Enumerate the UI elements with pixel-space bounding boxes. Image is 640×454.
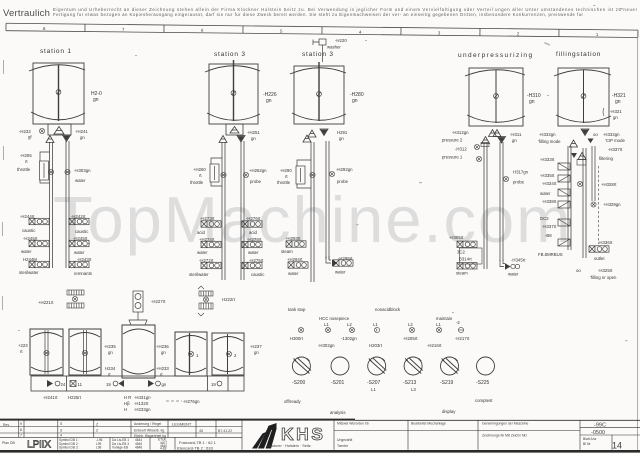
svg-text:+H233: +H233 xyxy=(156,366,169,371)
svg-text:throttle: throttle xyxy=(277,180,291,185)
svg-text:-H205rt: -H205rt xyxy=(403,336,418,341)
svg-text:B314rt: B314rt xyxy=(459,257,472,262)
svg-text:L3: L3 xyxy=(411,387,416,392)
svg-text:-H232: -H232 xyxy=(19,129,31,134)
svg-text:Mitswei Wurorden bb: Mitswei Wurorden bb xyxy=(337,421,369,425)
svg-text:water: water xyxy=(197,250,208,255)
svg-text:-H345rt: -H345rt xyxy=(511,258,526,263)
svg-text:-H332gn: -H332gn xyxy=(603,132,620,137)
svg-text:Blatt Anz: Blatt Anz xyxy=(583,437,597,441)
svg-text:S: S xyxy=(60,429,63,433)
svg-text:gn: gn xyxy=(512,138,517,143)
svg-text:gn: gn xyxy=(339,136,344,141)
svg-text:+H293rt: +H293rt xyxy=(285,236,301,241)
svg-text:gn: gn xyxy=(615,99,621,105)
svg-text:-H243rt: -H243rt xyxy=(77,257,92,262)
svg-text:off/ready: off/ready xyxy=(284,399,301,404)
svg-text:24: 24 xyxy=(61,382,66,387)
svg-text:-H312gn: -H312gn xyxy=(452,130,469,135)
svg-text:L1: L1 xyxy=(371,387,376,392)
svg-text:1: 1 xyxy=(196,353,199,358)
svg-text:+H251: +H251 xyxy=(247,130,260,135)
svg-text:Fertigung fur etwas bezogen an: Fertigung fur etwas bezogen an Kopiesher… xyxy=(53,12,584,17)
svg-text:-2: -2 xyxy=(456,320,460,325)
svg-text:H291: H291 xyxy=(337,130,348,135)
svg-text:Zeichnungs-Nr M8 Zeichn ND: Zeichnungs-Nr M8 Zeichn ND xyxy=(482,433,527,437)
svg-text:gn: gn xyxy=(266,98,272,104)
svg-text:-H275rt: -H275rt xyxy=(249,258,264,263)
svg-text:Vertraulich: Vertraulich xyxy=(3,8,50,19)
svg-text:+H328rt: +H328rt xyxy=(601,182,617,187)
svg-text:water: water xyxy=(508,272,519,277)
svg-text:-H303gn: -H303gn xyxy=(74,168,91,173)
svg-text:L2: L2 xyxy=(347,322,352,327)
svg-text:Z: Z xyxy=(96,423,99,427)
svg-text:-H332gn: -H332gn xyxy=(539,132,556,137)
svg-text:-0500: -0500 xyxy=(591,430,605,436)
svg-text:oo: oo xyxy=(576,268,581,273)
svg-text:-H305rt: -H305rt xyxy=(449,235,464,240)
svg-text:7: 7 xyxy=(20,434,22,438)
svg-text:-H245rt: -H245rt xyxy=(23,236,38,241)
svg-text:caustic: caustic xyxy=(22,228,36,233)
svg-text:4848: 4848 xyxy=(135,446,142,450)
svg-text:5: 5 xyxy=(280,29,283,34)
svg-text:water: water xyxy=(335,270,346,275)
svg-text:-H241rt: -H241rt xyxy=(43,395,58,400)
svg-text:19: 19 xyxy=(211,382,216,387)
svg-text:Anderung / Regel: Anderung / Regel xyxy=(134,422,161,426)
svg-text:-H335rt: -H335rt xyxy=(540,173,555,178)
svg-text:FB.8MRBUS: FB.8MRBUS xyxy=(538,252,563,257)
svg-text:-1302gn: -1302gn xyxy=(341,336,357,341)
svg-text:gn: gn xyxy=(161,350,166,355)
svg-text:Klockner · Holstein · Seitz: Klockner · Holstein · Seitz xyxy=(267,444,311,448)
svg-text:station 1: station 1 xyxy=(40,48,72,55)
svg-text:-H273rt: -H273rt xyxy=(200,216,215,221)
svg-text:'CIP mode: 'CIP mode xyxy=(605,138,625,143)
svg-text:water: water xyxy=(248,250,259,255)
svg-text:-H333rt: -H333rt xyxy=(540,157,555,162)
svg-text:+H221rt: +H221rt xyxy=(38,300,54,305)
svg-text:gf: gf xyxy=(28,135,32,140)
svg-text:+H294rt: +H294rt xyxy=(287,257,303,262)
svg-text:acid: acid xyxy=(249,230,257,235)
svg-text:rt: rt xyxy=(20,349,23,354)
svg-text:station 3: station 3 xyxy=(302,51,334,58)
svg-text:-99C: -99C xyxy=(594,423,606,429)
svg-text:-H334rt: -H334rt xyxy=(542,181,557,186)
svg-text:1: 1 xyxy=(596,32,599,37)
svg-text:probe: probe xyxy=(513,180,525,185)
svg-text:water: water xyxy=(21,249,32,254)
svg-text:water: water xyxy=(75,178,86,183)
svg-text:Symbol DB 3 :: Symbol DB 3 : xyxy=(59,446,79,450)
svg-text:LPIIX: LPIIX xyxy=(27,439,51,451)
svg-text:4: 4 xyxy=(359,29,362,34)
svg-text:H: H xyxy=(124,407,127,412)
svg-text:Hβ: Hβ xyxy=(124,401,130,406)
svg-text:probe: probe xyxy=(250,179,262,184)
svg-text:3C2: 3C2 xyxy=(457,250,465,255)
svg-text:-S200: -S200 xyxy=(292,380,306,386)
svg-text:-H311: -H311 xyxy=(510,132,522,137)
svg-text:filtering: filtering xyxy=(599,156,613,161)
svg-text:Tcenter: Tcenter xyxy=(337,444,349,448)
svg-text:TopMachine.com: TopMachine.com xyxy=(53,183,572,256)
svg-text:fillingstation: fillingstation xyxy=(556,51,601,58)
svg-text:-S207: -S207 xyxy=(367,380,381,386)
svg-text:11: 11 xyxy=(78,382,83,387)
svg-text:gn: gn xyxy=(162,382,167,387)
svg-text:LEGMENT: LEGMENT xyxy=(172,422,192,427)
svg-text:pressure 1: pressure 1 xyxy=(442,155,463,160)
svg-text:+H262gn: +H262gn xyxy=(249,168,267,173)
svg-text:-H337rt: -H337rt xyxy=(608,147,623,152)
svg-text:-S219: -S219 xyxy=(440,380,454,386)
svg-text:Genehmigungen der Maschine: Genehmigungen der Maschine xyxy=(482,421,528,425)
svg-text:9: 9 xyxy=(20,422,22,426)
svg-text:sterilwater: sterilwater xyxy=(19,270,39,275)
svg-text:-H132rt: -H132rt xyxy=(134,401,149,406)
svg-text:-H272rt: -H272rt xyxy=(199,258,214,263)
svg-text:underpressurizing: underpressurizing xyxy=(458,52,533,59)
svg-text:Plan DB: Plan DB xyxy=(2,441,16,445)
svg-text:Bearbeitet Mechanlage: Bearbeitet Mechanlage xyxy=(411,421,446,425)
svg-text:6: 6 xyxy=(201,28,204,33)
svg-text:-H216rt: -H216rt xyxy=(427,343,442,348)
svg-text:H222rt: H222rt xyxy=(222,297,236,302)
svg-text:+H241: +H241 xyxy=(75,129,88,134)
svg-text:probe: probe xyxy=(337,179,349,184)
svg-text:display: display xyxy=(442,409,456,414)
svg-text:-H220: -H220 xyxy=(335,38,347,43)
svg-text:-H276rt: -H276rt xyxy=(246,216,261,221)
svg-text:steam: steam xyxy=(281,249,293,254)
svg-text:Vorlage-EB: Vorlage-EB xyxy=(112,446,128,450)
svg-text:analysis: analysis xyxy=(330,410,346,415)
svg-text:Francard-TB 1 : 62 1: Francard-TB 1 : 62 1 xyxy=(179,440,217,445)
svg-text:H R: H R xyxy=(124,395,131,400)
svg-text:-H431gn: -H431gn xyxy=(134,395,151,400)
svg-text:3: 3 xyxy=(438,30,441,35)
svg-text:H203rt: H203rt xyxy=(369,343,383,348)
svg-text:-H235: -H235 xyxy=(104,344,116,349)
svg-text:-H312: -H312 xyxy=(455,147,467,152)
svg-text:-H237: -H237 xyxy=(250,344,262,349)
svg-text:steam: steam xyxy=(456,271,468,276)
svg-text:KHS: KHS xyxy=(281,424,325,444)
svg-text:Rev: Rev xyxy=(3,423,9,427)
svg-text:B7.41.22: B7.41.22 xyxy=(218,429,232,433)
svg-text:oo: oo xyxy=(593,132,598,137)
svg-text:4: 4 xyxy=(60,434,62,438)
svg-text:L98: L98 xyxy=(96,446,102,450)
svg-text:+223: +223 xyxy=(18,343,28,348)
svg-text:gn: gn xyxy=(529,99,535,105)
svg-text:gn: gn xyxy=(254,350,259,355)
svg-text:washer: washer xyxy=(327,45,341,50)
svg-text:gn: gn xyxy=(352,98,358,104)
svg-text:7: 7 xyxy=(122,27,125,32)
svg-text:-H290: -H290 xyxy=(280,168,292,173)
svg-text:-H242rt: -H242rt xyxy=(71,214,86,219)
svg-text:8: 8 xyxy=(20,428,22,432)
svg-text:caustic: caustic xyxy=(251,272,265,277)
svg-text:L1: L1 xyxy=(324,322,329,327)
svg-text:DC2: DC2 xyxy=(540,216,549,221)
svg-text:Entwurf Wheelb. kg: Entwurf Wheelb. kg xyxy=(134,429,164,433)
svg-text:-S201: -S201 xyxy=(331,380,345,386)
svg-text:H300rt: H300rt xyxy=(290,336,304,341)
svg-text:gn: gn xyxy=(613,115,618,120)
svg-text:H244M: H244M xyxy=(23,257,37,262)
svg-text:acid: acid xyxy=(197,230,205,235)
svg-text:sterilwater: sterilwater xyxy=(189,272,209,277)
svg-text:gn: gn xyxy=(93,97,99,103)
svg-text:-H321: -H321 xyxy=(610,109,622,114)
svg-text:throttle: throttle xyxy=(17,167,31,172)
svg-text:-H227rt: -H227rt xyxy=(151,299,166,304)
svg-text:outlet: outlet xyxy=(594,256,605,261)
svg-text:gn: gn xyxy=(251,136,256,141)
svg-text:L1: L1 xyxy=(436,322,441,327)
svg-text:-H292gn: -H292gn xyxy=(336,167,353,172)
svg-text:8: 8 xyxy=(43,26,46,31)
svg-text:'filling mode: 'filling mode xyxy=(538,139,561,144)
svg-text:water: water xyxy=(288,271,299,276)
svg-text:-H295rt: -H295rt xyxy=(338,256,353,261)
svg-text:'filling nr open: 'filling nr open xyxy=(590,275,617,280)
svg-text:H234: H234 xyxy=(105,366,116,371)
svg-text:19: 19 xyxy=(106,382,111,387)
svg-text:rt: rt xyxy=(285,174,288,179)
svg-text:comptest: comptest xyxy=(475,398,493,403)
svg-text:rt: rt xyxy=(25,159,28,164)
svg-text:-H325rt: -H325rt xyxy=(598,268,613,273)
svg-text:remnants: remnants xyxy=(74,271,92,276)
svg-text:pressure 2: pressure 2 xyxy=(442,138,463,143)
svg-text:-B8: -B8 xyxy=(545,233,552,238)
svg-text:gn: gn xyxy=(108,350,113,355)
svg-text:L2: L2 xyxy=(408,322,413,327)
svg-text:-H276gn: -H276gn xyxy=(183,399,200,404)
svg-text:14: 14 xyxy=(612,441,622,451)
svg-text:water: water xyxy=(74,250,85,255)
svg-text:tank stop: tank stop xyxy=(288,307,306,312)
svg-text:L1: L1 xyxy=(373,322,378,327)
svg-text:throttle: throttle xyxy=(190,180,204,185)
svg-text:-H336rt: -H336rt xyxy=(598,240,613,245)
svg-text:2: 2 xyxy=(234,353,237,358)
svg-text:+H236: +H236 xyxy=(156,344,169,349)
svg-text:rt: rt xyxy=(199,173,202,178)
svg-text:S: S xyxy=(60,422,63,426)
svg-text:Etencard-TB 2 : 633: Etencard-TB 2 : 633 xyxy=(177,445,214,450)
svg-text:-H233gn: -H233gn xyxy=(134,407,151,412)
svg-text:H225rt: H225rt xyxy=(68,395,82,400)
svg-text:-S213: -S213 xyxy=(403,380,417,386)
svg-text:-H302gn: -H302gn xyxy=(318,343,335,348)
svg-text:Z: Z xyxy=(96,429,99,433)
svg-text:caustic: caustic xyxy=(75,229,89,234)
svg-text:-S225: -S225 xyxy=(476,380,490,386)
svg-text:+H260: +H260 xyxy=(193,167,206,172)
svg-text:-H278rt: -H278rt xyxy=(247,237,262,242)
svg-text:2: 2 xyxy=(517,31,520,36)
svg-text:gn: gn xyxy=(80,135,85,140)
svg-text:H317gn: H317gn xyxy=(513,170,529,175)
svg-text:+H329gn: +H329gn xyxy=(603,202,621,207)
svg-text:-H244rt: -H244rt xyxy=(20,214,35,219)
svg-text:maintain: maintain xyxy=(436,316,453,321)
svg-text:-H338rt: -H338rt xyxy=(542,199,557,204)
svg-text:-H255: -H255 xyxy=(20,153,32,158)
svg-text:station 3: station 3 xyxy=(214,51,246,58)
svg-text:-H245rt: -H245rt xyxy=(73,236,88,241)
svg-text:Ungezahlt: Ungezahlt xyxy=(337,438,352,442)
svg-text:Bl Nr: Bl Nr xyxy=(583,442,591,446)
svg-text:-H337rt: -H337rt xyxy=(542,224,557,229)
svg-text:45: 45 xyxy=(199,429,203,433)
svg-text:-H217rt: -H217rt xyxy=(455,336,470,341)
svg-text:nonacidblock: nonacidblock xyxy=(375,307,401,312)
svg-text:HCC nosepiece: HCC nosepiece xyxy=(319,316,350,321)
svg-text:+H274rt: +H274rt xyxy=(199,237,215,242)
svg-text:water: water xyxy=(540,191,551,196)
